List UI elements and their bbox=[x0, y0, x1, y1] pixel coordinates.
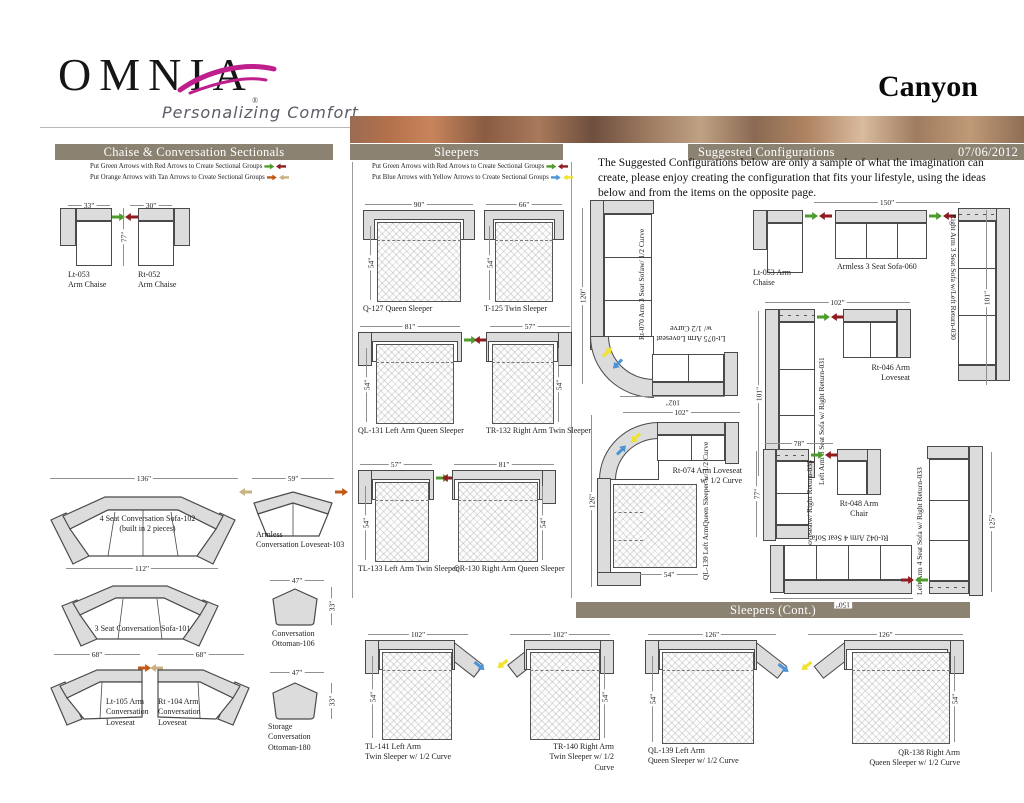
dim-width: 57" bbox=[360, 464, 432, 465]
dim-depth: 54" bbox=[365, 486, 366, 560]
dim-height: 33" bbox=[331, 587, 332, 625]
dim-width: 112" bbox=[66, 568, 218, 569]
item-label: StorageConversationOttoman-180 bbox=[268, 722, 311, 753]
dim-depth: 54" bbox=[366, 348, 367, 422]
return-bar bbox=[958, 208, 998, 221]
item-label: QL-131 Left Arm Queen Sleeper bbox=[358, 426, 464, 436]
page-title: Canyon bbox=[778, 70, 978, 104]
item-label: Lt-105 ArmConversationLoveseat bbox=[106, 697, 149, 728]
bed-fold-line bbox=[495, 240, 553, 241]
bed-mattress bbox=[530, 652, 600, 740]
green-arrow-icon bbox=[546, 163, 556, 169]
legend-chaise-orange-tan: Put Orange Arrows with Tan Arrows to Cre… bbox=[90, 174, 289, 181]
red-arrow-icon bbox=[819, 212, 832, 220]
legend-text: Put Green Arrows with Red Arrows to Crea… bbox=[372, 163, 544, 170]
dim-depth: 54" bbox=[558, 348, 559, 422]
bed-mattress bbox=[376, 344, 454, 424]
green-arrow-icon bbox=[817, 313, 830, 321]
item-label: QR-138 Right ArmQueen Sleeper w/ 1/2 Cur… bbox=[845, 748, 960, 769]
sofa-back bbox=[652, 382, 724, 396]
seat-divider bbox=[880, 545, 881, 580]
dim-height: 101" bbox=[986, 210, 987, 385]
bed-fold-line bbox=[376, 362, 454, 363]
dim-width: 150" bbox=[814, 202, 960, 203]
item-label: QL-139 Left ArmQueen Sleeper w/ 1/2 Curv… bbox=[701, 484, 711, 580]
chaise-seat bbox=[76, 221, 112, 266]
item-label: Left Arm 4 Seat Sofa w/ Right Return-033 bbox=[915, 450, 925, 595]
config-rt070-lt075: 120" Rt-070 Arm 3 Seat Sofaw/ 1/2 Curve … bbox=[575, 196, 750, 411]
dim-width: 57" bbox=[490, 326, 570, 327]
sofa-back bbox=[843, 309, 897, 322]
green-arrow-icon bbox=[264, 163, 274, 169]
item-label: Lt-053Arm Chaise bbox=[68, 270, 106, 291]
diagram-lt053-rt052: 33" 30" 77" Lt-053Arm Chaise Rt-052Arm C… bbox=[60, 196, 210, 306]
sofa-arm bbox=[558, 332, 572, 366]
bed-mattress bbox=[382, 652, 452, 740]
seat-divider bbox=[958, 268, 996, 269]
section-bar-sleepers-cont: Sleepers (Cont.) bbox=[576, 602, 970, 618]
seat-divider bbox=[848, 545, 849, 580]
legend-text: Put Blue Arrows with Yellow Arrows to Cr… bbox=[372, 174, 549, 181]
item-label: TR-140 Right ArmTwin Sleeper w/ 1/2 Curv… bbox=[528, 742, 614, 773]
seat-divider bbox=[958, 315, 996, 316]
sofa-arm bbox=[725, 422, 739, 464]
item-label: 3 Seat Conversation Sofa-101 bbox=[70, 624, 215, 634]
dim-height: 120" bbox=[582, 208, 583, 384]
yellow-arrow-icon bbox=[563, 174, 573, 180]
bed-fold-line bbox=[375, 500, 429, 501]
sofa-back bbox=[996, 208, 1010, 381]
bed-fold-line bbox=[377, 240, 461, 241]
item-label: Armless 3 Seat Sofa-060 bbox=[837, 262, 917, 272]
catalog-page: OMNIA ® Personalizing Comfort Canyon Cha… bbox=[0, 0, 1024, 803]
green-arrow-icon bbox=[805, 212, 818, 220]
dim-depth: 54" bbox=[372, 656, 373, 738]
dim-width: 102" bbox=[510, 634, 610, 635]
seat-divider bbox=[866, 223, 867, 259]
sofa-arm bbox=[542, 470, 556, 504]
bed-fold-line bbox=[458, 500, 538, 501]
dim-depth: 54" bbox=[954, 656, 955, 742]
item-label: QR-130 Right Arm Queen Sleeper bbox=[454, 564, 565, 574]
sofa-arm bbox=[927, 446, 969, 459]
diagram-tl133: 57" 54" TL-133 Left Arm Twin Sleeper bbox=[358, 460, 440, 578]
dim-height: 77" bbox=[756, 451, 757, 537]
item-label: ConversationOttoman-106 bbox=[272, 629, 315, 650]
section-bar-chaise: Chaise & Conversation Sectionals bbox=[55, 144, 333, 160]
dim-width: 66" bbox=[486, 204, 562, 205]
dim-width: 126" bbox=[808, 634, 963, 635]
diagram-q127: 90" 54" Q-127 Queen Sleeper bbox=[363, 200, 475, 318]
dim-width: 81" bbox=[454, 464, 554, 465]
sofa-back bbox=[835, 210, 927, 223]
dim-depth: 54" bbox=[604, 656, 605, 738]
diagram-t125: 66" 54" T-125 Twin Sleeper bbox=[484, 200, 564, 318]
seat-divider bbox=[688, 354, 689, 382]
seat-divider bbox=[870, 322, 871, 358]
item-label: ArmlessConversation Loveseat-103 bbox=[256, 530, 344, 551]
sofa-arm bbox=[358, 332, 372, 366]
diagram-ott180 bbox=[268, 679, 322, 721]
item-label: Right Arm 3 Seat Sofa w/Left Return-030 bbox=[948, 214, 958, 386]
seat-divider bbox=[779, 415, 815, 416]
bed-fold-line bbox=[852, 670, 950, 671]
dim-width: 33" bbox=[68, 205, 110, 206]
red-arrow-icon bbox=[276, 163, 286, 169]
red-arrow-icon bbox=[558, 163, 568, 169]
dim-width: 102" bbox=[368, 634, 468, 635]
diagram-ql139: 126" 54" QL-139 Left ArmQueen Sleeper w/… bbox=[645, 630, 800, 775]
bed-fold-line bbox=[613, 512, 643, 513]
dim-width: 102" bbox=[620, 396, 725, 397]
return-bar bbox=[929, 581, 969, 594]
item-label: Q-127 Queen Sleeper bbox=[363, 304, 432, 314]
chaise-seat bbox=[767, 223, 803, 273]
orange-arrow-icon bbox=[267, 174, 277, 180]
chaise-seat bbox=[138, 221, 174, 266]
item-label: 4 Seat Conversation Sofa-102(built in 2 … bbox=[85, 514, 210, 535]
diagram-tr140: 102" 54" TR-140 Right ArmTwin Sleeper w/… bbox=[498, 630, 623, 770]
dim-width: 126" bbox=[648, 634, 776, 635]
seat-divider bbox=[691, 435, 692, 461]
legend-text: Put Orange Arrows with Tan Arrows to Cre… bbox=[90, 174, 265, 181]
yellow-arrow-icon bbox=[799, 659, 814, 673]
tan-arrow-icon bbox=[279, 174, 289, 180]
item-label: Rt -104 ArmConversationLoveseat bbox=[158, 697, 201, 728]
dim-width: 90" bbox=[365, 204, 473, 205]
section-bar-sleepers: Sleepers bbox=[350, 144, 563, 160]
sofa-back bbox=[590, 200, 604, 350]
sofa-arm bbox=[958, 365, 996, 381]
diagram-qr130: 81" 54" QR-130 Right Arm Queen Sleeper bbox=[452, 460, 562, 578]
item-label: Lt-053 ArmChaise bbox=[753, 268, 791, 289]
dim-width: 47" bbox=[270, 580, 324, 581]
dim-width: 150" bbox=[773, 598, 913, 599]
dim-bed-width: 54" bbox=[640, 574, 698, 575]
sofa-seat bbox=[929, 459, 969, 581]
chaise-back bbox=[138, 208, 174, 221]
item-label: Rt-042 Arm 4 Seat Sofa bbox=[790, 532, 910, 542]
dim-width: 59" bbox=[252, 478, 334, 479]
chaise-arm bbox=[174, 208, 190, 246]
dim-height: 125" bbox=[991, 452, 992, 592]
chaise-arm bbox=[753, 210, 767, 250]
sofa-arm bbox=[950, 640, 964, 674]
sofa-arm bbox=[597, 572, 641, 586]
chaise-back bbox=[76, 208, 112, 221]
bed-mattress bbox=[495, 222, 553, 302]
dim-width: 102" bbox=[623, 412, 740, 413]
brand-tagline: Personalizing Comfort bbox=[162, 103, 359, 122]
sofa-arm bbox=[600, 640, 614, 674]
dim-width: 68" bbox=[54, 654, 140, 655]
red-arrow-icon bbox=[125, 213, 138, 221]
bed-mattress bbox=[375, 482, 429, 562]
suggested-intro-text: The Suggested Configurations below are o… bbox=[598, 156, 1014, 202]
bed-fold-line bbox=[382, 670, 452, 671]
bed-mattress bbox=[613, 484, 697, 568]
sofa-arm bbox=[724, 352, 738, 396]
bed-mattress bbox=[458, 482, 538, 562]
bed-mattress bbox=[377, 222, 461, 302]
bed-mattress bbox=[852, 652, 950, 744]
orange-arrow-icon bbox=[335, 488, 348, 496]
item-label: T-125 Twin Sleeper bbox=[484, 304, 547, 314]
dim-height: 77" bbox=[123, 208, 124, 266]
chaise-back bbox=[767, 210, 803, 223]
dim-width: 68" bbox=[158, 654, 244, 655]
dim-height: 126" bbox=[591, 415, 592, 587]
brand-swoosh-icon bbox=[178, 60, 278, 96]
seat-divider bbox=[816, 545, 817, 580]
blue-arrow-icon bbox=[551, 174, 561, 180]
diagram-sofa101 bbox=[60, 576, 220, 646]
green-arrow-icon bbox=[929, 212, 942, 220]
seat-divider bbox=[897, 223, 898, 259]
legend-chaise-green-red: Put Green Arrows with Red Arrows to Crea… bbox=[90, 163, 286, 170]
diagram-tr132: 57" 54" TR-132 Right Arm Twin Sleeper bbox=[482, 322, 574, 440]
bed-fold-line bbox=[492, 362, 554, 363]
item-label: QL-139 Left ArmQueen Sleeper w/ 1/2 Curv… bbox=[648, 746, 739, 767]
sofa-back bbox=[969, 446, 983, 596]
sofa-back bbox=[784, 580, 912, 594]
item-label: Rt-052Arm Chaise bbox=[138, 270, 176, 291]
legend-sleeper-green-red: Put Green Arrows with Red Arrows to Crea… bbox=[372, 163, 568, 170]
legend-sleeper-blue-yellow: Put Blue Arrows with Yellow Arrows to Cr… bbox=[372, 174, 573, 181]
item-label: TR-132 Right Arm Twin Sleeper bbox=[486, 426, 591, 436]
item-label: Rt-070 Arm 3 Seat Sofaw/ 1/2 Curve bbox=[637, 220, 647, 340]
header-hairline bbox=[40, 127, 352, 128]
bed-mattress bbox=[492, 344, 554, 424]
item-label: TL-141 Left ArmTwin Sleeper w/ 1/2 Curve bbox=[365, 742, 451, 763]
dim-depth: 54" bbox=[370, 226, 371, 300]
seat-divider bbox=[779, 369, 815, 370]
sofa-back bbox=[657, 422, 725, 435]
sofa-back bbox=[597, 478, 611, 578]
chaise-arm bbox=[60, 208, 76, 246]
sofa-arm bbox=[897, 309, 911, 358]
diagram-ott106 bbox=[268, 585, 322, 627]
dim-width: 47" bbox=[270, 672, 324, 673]
bed-mattress bbox=[662, 652, 754, 744]
bed-fold-line bbox=[662, 670, 754, 671]
diagram-qr138: 126" 54" QR-138 Right ArmQueen Sleeper w… bbox=[800, 630, 970, 775]
dim-depth: 54" bbox=[542, 486, 543, 560]
sofa-arm bbox=[770, 545, 784, 593]
diagram-ql131: 81" 54" QL-131 Left Arm Queen Sleeper bbox=[358, 322, 470, 440]
dim-depth: 54" bbox=[652, 656, 653, 742]
dim-width: 136" bbox=[50, 478, 238, 479]
dim-width: 30" bbox=[130, 205, 172, 206]
dim-width: 102" bbox=[765, 302, 910, 303]
config-rt074-ql139: 102" 126" Rt-074 Arm Loveseatw/ 1/2 Curv… bbox=[585, 400, 760, 600]
dim-height: 33" bbox=[331, 683, 332, 719]
bed-fold-line bbox=[530, 670, 600, 671]
leather-texture-strip bbox=[350, 116, 1024, 143]
diagram-tl141: 102" 54" TL-141 Left ArmTwin Sleeper w/ … bbox=[365, 630, 490, 770]
dim-width: 81" bbox=[360, 326, 460, 327]
config-rt042-033: 125" Left Arm 4 Seat Sofa w/ Right Retur… bbox=[765, 430, 1000, 600]
legend-text: Put Green Arrows with Red Arrows to Crea… bbox=[90, 163, 262, 170]
sofa-seat bbox=[835, 223, 927, 259]
dim-depth: 54" bbox=[489, 226, 490, 300]
seat-divider bbox=[929, 500, 969, 501]
item-label: TL-133 Left Arm Twin Sleeper bbox=[358, 564, 458, 574]
item-label: Rt-046 ArmLoveseat bbox=[850, 363, 910, 384]
column-divider-left bbox=[352, 162, 353, 598]
return-bar bbox=[779, 309, 815, 322]
bed-fold-line bbox=[613, 540, 643, 541]
seat-divider bbox=[929, 540, 969, 541]
item-label: Lt-075 Arm Loveseatw/ 1/2 Curve bbox=[655, 322, 727, 343]
